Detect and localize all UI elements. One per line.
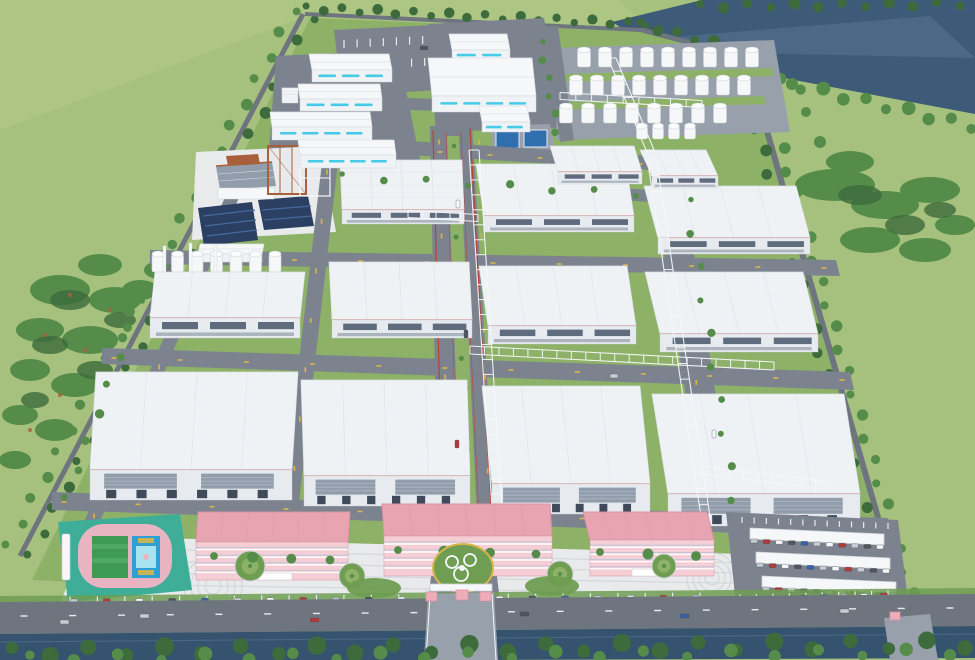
lab-building-2 bbox=[298, 84, 382, 111]
industrial-park-aerial-render bbox=[0, 0, 975, 660]
mega-warehouse-a bbox=[90, 372, 298, 500]
garden-gazebo bbox=[459, 565, 465, 571]
court-key-north bbox=[138, 538, 154, 543]
soccer-pitch bbox=[92, 536, 128, 578]
gate-booth-east bbox=[480, 592, 491, 601]
basin-east bbox=[524, 130, 547, 147]
gate-booth-west bbox=[426, 592, 437, 601]
mega-warehouse-b bbox=[301, 380, 470, 506]
mega-warehouse-d bbox=[652, 394, 860, 526]
admin-annex bbox=[479, 106, 530, 132]
lab-building-1 bbox=[309, 54, 392, 82]
admin-penthouse bbox=[449, 34, 510, 60]
pitch-stripe2 bbox=[92, 558, 128, 563]
court-key-south bbox=[138, 570, 154, 575]
tank-farm-row1 bbox=[578, 47, 759, 67]
tank-farm-row2 bbox=[570, 75, 751, 95]
utility-stack1 bbox=[163, 246, 166, 272]
warehouse-r2-d bbox=[645, 272, 818, 352]
treatment-pool-east bbox=[258, 196, 314, 230]
lab-building-3 bbox=[270, 112, 372, 140]
gate-booth-center bbox=[456, 590, 468, 600]
treatment-pool-west bbox=[198, 202, 258, 246]
lab-building-4 bbox=[298, 140, 396, 168]
dormitory-west bbox=[196, 512, 350, 580]
pitch-stripe1 bbox=[92, 544, 128, 549]
scene-canvas bbox=[0, 0, 975, 660]
grandstand-canopy bbox=[62, 534, 70, 580]
plaza-lawn-circle-4 bbox=[652, 554, 676, 578]
basin-west bbox=[496, 131, 519, 148]
warehouse-r2-c bbox=[479, 266, 636, 344]
solar-building-facade bbox=[218, 188, 274, 199]
court-center-dot bbox=[143, 554, 149, 560]
orange-tile-roof bbox=[226, 154, 260, 166]
utility-shed-west bbox=[550, 146, 642, 184]
warehouse-r2-b bbox=[329, 262, 472, 338]
guard-hut bbox=[282, 88, 298, 103]
skylight-workshop bbox=[340, 160, 464, 224]
mega-warehouse-c bbox=[482, 386, 650, 514]
utility-stack2 bbox=[189, 243, 192, 272]
utility-plant-building bbox=[150, 272, 305, 338]
east-gate-booth bbox=[890, 612, 900, 620]
utility-stack3 bbox=[214, 245, 217, 272]
admin-main-building bbox=[428, 58, 536, 112]
dormitory-east bbox=[583, 512, 714, 576]
